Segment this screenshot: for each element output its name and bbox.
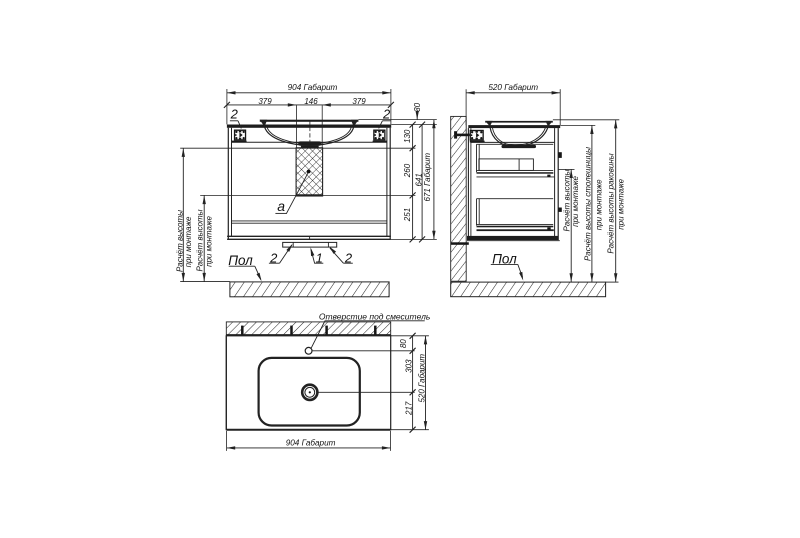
svg-text:Расчёт высоты раковины: Расчёт высоты раковины xyxy=(606,153,615,253)
svg-text:904 Габарит: 904 Габарит xyxy=(288,83,338,92)
svg-text:при монтаже: при монтаже xyxy=(571,176,580,227)
svg-text:2: 2 xyxy=(382,107,391,122)
svg-text:30: 30 xyxy=(413,102,422,111)
svg-text:при монтаже: при монтаже xyxy=(205,216,214,267)
svg-text:2: 2 xyxy=(230,107,239,122)
svg-text:Расчёт высоты столешницы: Расчёт высоты столешницы xyxy=(584,147,593,261)
svg-text:80: 80 xyxy=(399,339,408,348)
svg-text:при монтаже: при монтаже xyxy=(594,179,603,230)
svg-text:при монтаже: при монтаже xyxy=(616,178,625,229)
svg-text:Расчёт высоты: Расчёт высоты xyxy=(196,209,205,271)
svg-text:641: 641 xyxy=(414,173,423,186)
svg-text:251: 251 xyxy=(403,208,412,222)
svg-text:а: а xyxy=(277,198,285,214)
svg-text:520 Габарит: 520 Габарит xyxy=(417,354,426,403)
svg-text:303: 303 xyxy=(405,359,414,373)
svg-text:260: 260 xyxy=(403,163,412,178)
svg-text:Расчёт высоты: Расчёт высоты xyxy=(563,169,572,231)
svg-text:904 Габарит: 904 Габарит xyxy=(286,438,336,447)
svg-text:146: 146 xyxy=(304,97,318,106)
svg-text:671 Габарит: 671 Габарит xyxy=(423,153,432,202)
svg-text:при монтаже: при монтаже xyxy=(184,216,193,267)
svg-text:520 Габарит: 520 Габарит xyxy=(488,83,538,92)
svg-text:217: 217 xyxy=(405,401,414,416)
svg-text:Отверстие под смеситель: Отверстие под смеситель xyxy=(319,311,430,321)
svg-text:379: 379 xyxy=(352,97,366,106)
svg-text:379: 379 xyxy=(258,97,272,106)
svg-text:130: 130 xyxy=(403,129,412,143)
svg-text:Пол: Пол xyxy=(228,253,253,268)
svg-text:Расчёт высоты: Расчёт высоты xyxy=(175,210,184,272)
